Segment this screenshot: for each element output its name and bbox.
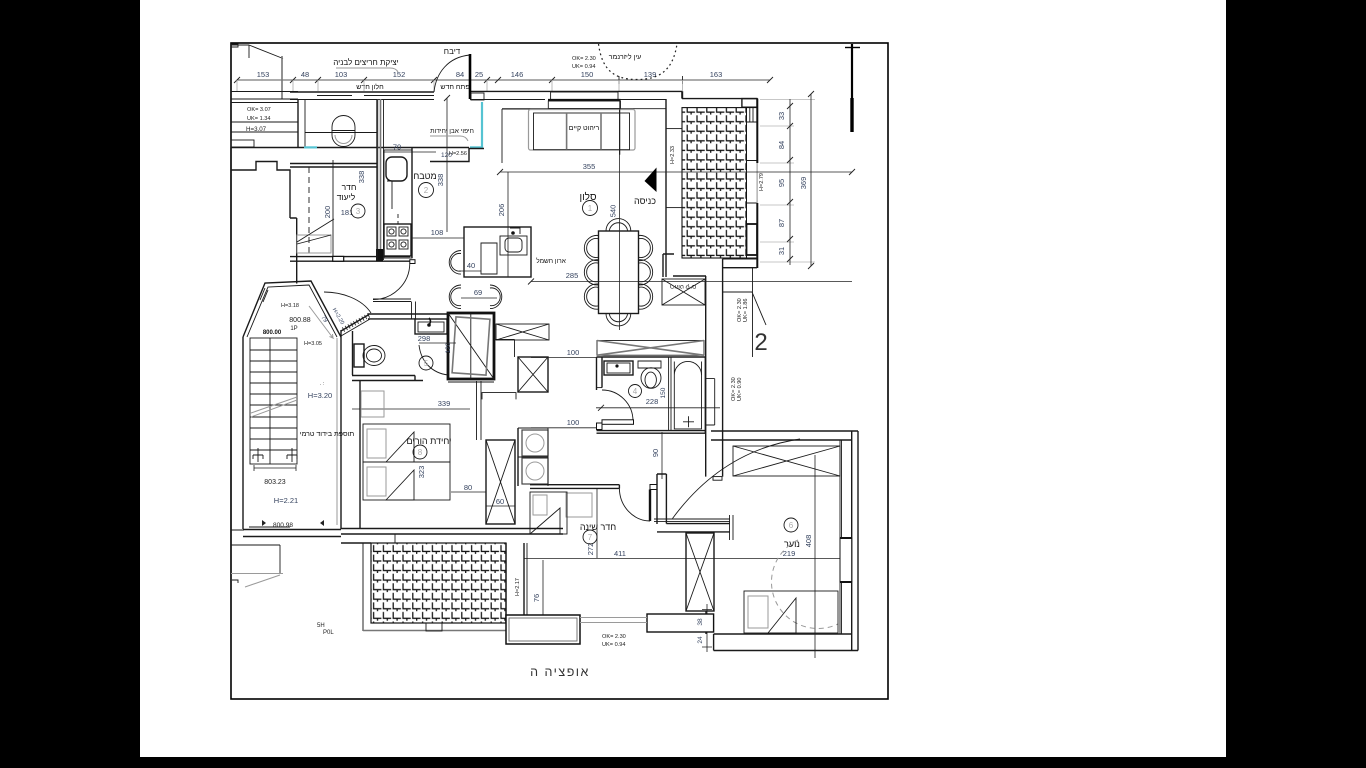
svg-text:84: 84 <box>777 141 786 149</box>
svg-text:H=2.21: H=2.21 <box>274 496 298 505</box>
svg-text:163: 163 <box>710 70 723 79</box>
svg-text:100: 100 <box>567 418 580 427</box>
svg-text:95: 95 <box>777 179 786 187</box>
svg-text:H=3.18: H=3.18 <box>281 303 299 309</box>
svg-text:120: 120 <box>445 342 452 353</box>
svg-text:87: 87 <box>777 219 786 227</box>
svg-text:411: 411 <box>614 549 626 558</box>
svg-text:76: 76 <box>532 594 541 602</box>
svg-text:90: 90 <box>651 449 660 457</box>
svg-text:272: 272 <box>586 543 595 556</box>
svg-text:24: 24 <box>697 636 704 644</box>
svg-text:7: 7 <box>588 533 593 542</box>
svg-text:חדר שינה: חדר שינה <box>580 522 616 532</box>
svg-text:219: 219 <box>783 549 796 558</box>
svg-text:40: 40 <box>467 261 475 270</box>
svg-text:33: 33 <box>777 112 786 120</box>
svg-text:298: 298 <box>418 334 431 343</box>
svg-text:ליעוד: ליעוד <box>337 192 356 202</box>
svg-text:חלון חדש: חלון חדש <box>356 83 384 91</box>
svg-text:כניסה: כניסה <box>634 196 656 206</box>
svg-text:38: 38 <box>697 618 704 626</box>
svg-text:חיפוי אבן יחידות: חיפוי אבן יחידות <box>430 128 474 135</box>
svg-text:69: 69 <box>474 288 482 297</box>
svg-text:UK= 1.86: UK= 1.86 <box>743 299 749 322</box>
svg-text:80: 80 <box>464 483 472 492</box>
svg-text:סלון: סלון <box>579 191 596 203</box>
svg-text:תוספת בידוד טרמי: תוספת בידוד טרמי <box>300 431 355 438</box>
svg-text:P0L: P0L <box>323 630 334 636</box>
svg-text:150: 150 <box>581 70 594 79</box>
svg-text:206: 206 <box>497 204 506 217</box>
svg-text:H=3.05: H=3.05 <box>304 341 322 347</box>
svg-text:H=2.79: H=2.79 <box>759 173 765 191</box>
svg-text:אופציה ה: אופציה ה <box>530 665 590 679</box>
svg-text:OK= 2.30: OK= 2.30 <box>602 634 626 640</box>
svg-text:ריהוט קיים: ריהוט קיים <box>569 125 600 132</box>
svg-text:עין ליזרנמר: עין ליזרנמר <box>609 53 641 61</box>
svg-text:ארון חשמל: ארון חשמל <box>536 257 566 265</box>
svg-text:8: 8 <box>418 448 423 457</box>
svg-text:339: 339 <box>438 399 451 408</box>
svg-text:2: 2 <box>424 186 429 195</box>
svg-text:153: 153 <box>257 70 270 79</box>
svg-text:H=2.33: H=2.33 <box>670 146 676 164</box>
svg-text:UK= 0.94: UK= 0.94 <box>602 642 625 648</box>
svg-text:84: 84 <box>456 70 464 79</box>
svg-text:4: 4 <box>633 387 638 396</box>
svg-text:OK= 2.30: OK= 2.30 <box>572 56 596 62</box>
svg-text:31: 31 <box>777 247 786 255</box>
svg-text:48: 48 <box>301 70 309 79</box>
svg-text:. :: . : <box>320 381 324 387</box>
svg-text:יציקת חריצים לבניה: יציקת חריצים לבניה <box>333 58 399 67</box>
svg-text:H=3.20: H=3.20 <box>308 391 332 400</box>
svg-text:OK= 3.07: OK= 3.07 <box>247 107 271 113</box>
svg-text:323: 323 <box>417 466 426 479</box>
svg-text:5H: 5H <box>317 623 325 629</box>
svg-text:338: 338 <box>436 174 445 187</box>
svg-text:369: 369 <box>799 177 808 190</box>
svg-text:6: 6 <box>789 521 794 530</box>
svg-text:H=3.07: H=3.07 <box>246 126 267 133</box>
svg-text:UK= 1.34: UK= 1.34 <box>247 116 270 122</box>
svg-text:H=2.56: H=2.56 <box>449 151 467 157</box>
svg-text:800.88: 800.88 <box>289 317 311 324</box>
svg-text:ריהוט קיים: ריהוט קיים <box>670 283 696 289</box>
svg-text:228: 228 <box>646 397 659 406</box>
svg-text:3: 3 <box>356 207 361 216</box>
svg-text:60: 60 <box>496 497 504 506</box>
svg-text:25: 25 <box>475 70 483 79</box>
svg-text:152: 152 <box>393 70 406 79</box>
svg-text:800.00: 800.00 <box>263 330 282 336</box>
svg-text:H=2.17: H=2.17 <box>515 578 521 596</box>
svg-text:2: 2 <box>754 329 767 356</box>
svg-text:יחידת הורים: יחידת הורים <box>407 436 452 446</box>
svg-text:803.23: 803.23 <box>264 479 286 486</box>
svg-text:UK= 0.90: UK= 0.90 <box>737 378 743 401</box>
svg-text:103: 103 <box>335 70 348 79</box>
svg-text:408: 408 <box>804 535 813 548</box>
svg-text:146: 146 <box>511 70 524 79</box>
svg-text:חדר: חדר <box>342 182 357 192</box>
svg-text:דיבח: דיבח <box>444 47 461 56</box>
svg-text:1P: 1P <box>290 326 297 332</box>
svg-text:1: 1 <box>588 204 593 213</box>
svg-text:100: 100 <box>567 348 580 357</box>
svg-text:338: 338 <box>357 171 366 184</box>
svg-text:200: 200 <box>323 206 332 219</box>
svg-text:800.98: 800.98 <box>273 522 293 529</box>
svg-text:285: 285 <box>566 271 579 280</box>
svg-text:355: 355 <box>583 162 596 171</box>
svg-text:מטבח: מטבח <box>413 171 436 181</box>
svg-text:UK= 0.94: UK= 0.94 <box>572 64 595 70</box>
svg-text:5: 5 <box>424 359 429 368</box>
svg-text:150: 150 <box>660 387 667 398</box>
svg-text:108: 108 <box>431 228 444 237</box>
svg-text:פתח חדש: פתח חדש <box>440 84 469 91</box>
svg-text:540: 540 <box>608 205 617 218</box>
